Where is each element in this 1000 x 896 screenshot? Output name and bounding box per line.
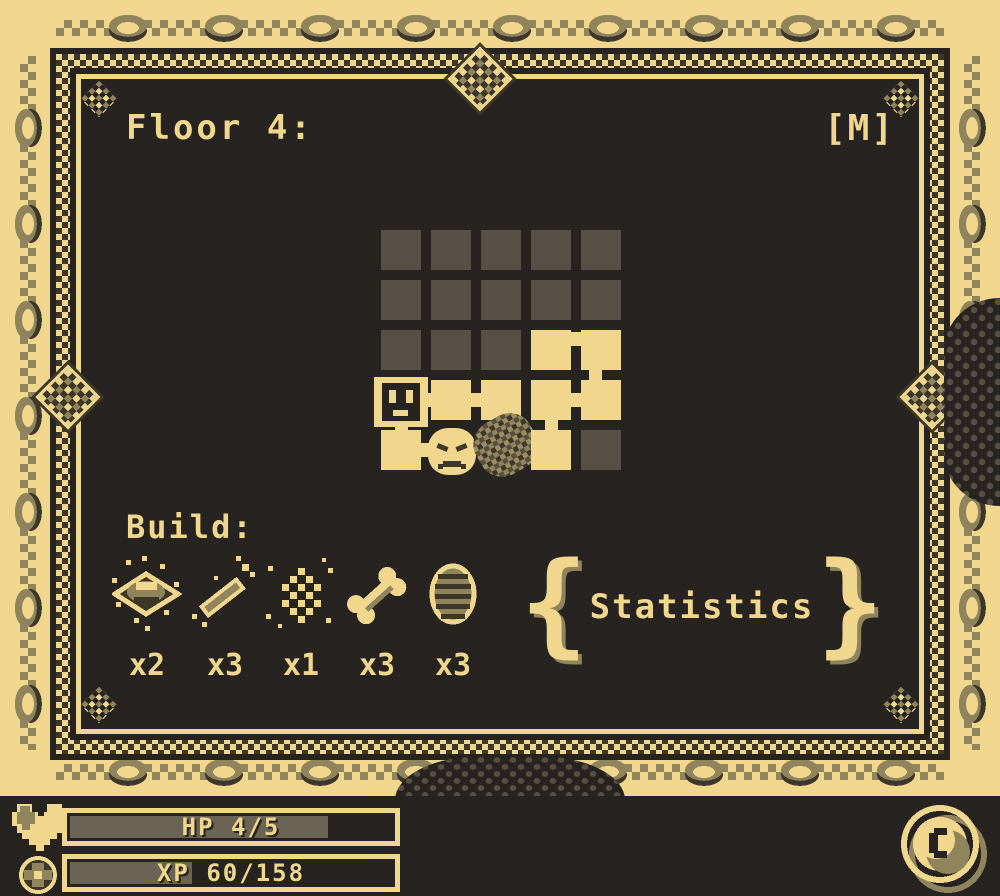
sparkle-icon bbox=[266, 556, 336, 636]
coil-icon bbox=[418, 556, 488, 636]
grid-tile-dark[interactable] bbox=[581, 230, 621, 270]
brace-right-icon: } bbox=[816, 559, 883, 649]
xp-orb-icon bbox=[14, 854, 62, 896]
build-count: x1 bbox=[266, 648, 336, 683]
grid-tile-dark[interactable] bbox=[381, 330, 421, 370]
grid-tile-dark[interactable] bbox=[381, 280, 421, 320]
grid-tile-player[interactable] bbox=[374, 377, 428, 427]
heart-icon bbox=[12, 804, 67, 852]
build-item-meat[interactable]: x2 bbox=[112, 556, 182, 690]
main-content: Floor 4: [M] Build: x2 bbox=[0, 0, 1000, 896]
player-face bbox=[382, 383, 420, 421]
build-count: x3 bbox=[342, 648, 412, 683]
grid-tile-dark[interactable] bbox=[481, 330, 521, 370]
coin-icon bbox=[896, 800, 990, 894]
status-bar: HP 4/5 XP 60/158 _ bbox=[0, 796, 1000, 896]
build-count: x3 bbox=[190, 648, 260, 683]
meat-icon bbox=[112, 556, 182, 636]
grid-tile-dark[interactable] bbox=[431, 280, 471, 320]
game-window: Floor 4: [M] Build: x2 bbox=[0, 0, 1000, 896]
grid-tile-dark[interactable] bbox=[431, 330, 471, 370]
grid-tile-light[interactable] bbox=[581, 380, 621, 420]
bone-icon bbox=[342, 556, 412, 636]
build-item-wand[interactable]: x3 bbox=[190, 556, 260, 690]
grid-tile-dark[interactable] bbox=[431, 230, 471, 270]
build-count: x3 bbox=[418, 648, 488, 683]
build-item-bone[interactable]: x3 bbox=[342, 556, 412, 690]
build-count: x2 bbox=[112, 648, 182, 683]
floor-label: Floor 4: bbox=[126, 108, 314, 148]
hp-bar-label: HP 4/5 bbox=[67, 813, 395, 841]
build-item-sparkle[interactable]: x1 bbox=[266, 556, 336, 690]
hp-bar: HP 4/5 bbox=[62, 808, 400, 846]
grid-tile-dark[interactable] bbox=[531, 280, 571, 320]
menu-button[interactable]: [M] bbox=[824, 108, 895, 149]
grid-tile-enemy[interactable] bbox=[428, 428, 476, 475]
grid-tile-dark[interactable] bbox=[531, 230, 571, 270]
statistics-label: Statistics bbox=[590, 587, 815, 627]
grid-tile-light[interactable] bbox=[381, 430, 421, 470]
grid-tile-light[interactable] bbox=[531, 430, 571, 470]
build-label: Build: bbox=[126, 508, 254, 546]
grid-tile-light[interactable] bbox=[431, 380, 471, 420]
xp-bar: XP 60/158 bbox=[62, 854, 400, 892]
brace-left-icon: { bbox=[520, 559, 587, 649]
xp-bar-label: XP 60/158 bbox=[67, 859, 395, 887]
build-item-coil[interactable]: x3 bbox=[418, 556, 488, 690]
grid-tile-dark[interactable] bbox=[581, 280, 621, 320]
grid-tile-light[interactable] bbox=[581, 330, 621, 370]
statistics-button[interactable]: { Statistics } bbox=[522, 548, 882, 660]
grid-tile-dark[interactable] bbox=[481, 280, 521, 320]
grid-tile-light[interactable] bbox=[531, 330, 571, 370]
grid-tile-dark[interactable] bbox=[481, 230, 521, 270]
wand-icon bbox=[190, 556, 260, 636]
grid-tile-dark[interactable] bbox=[381, 230, 421, 270]
grid-tile-dark[interactable] bbox=[581, 430, 621, 470]
grid-tile-light[interactable] bbox=[531, 380, 571, 420]
